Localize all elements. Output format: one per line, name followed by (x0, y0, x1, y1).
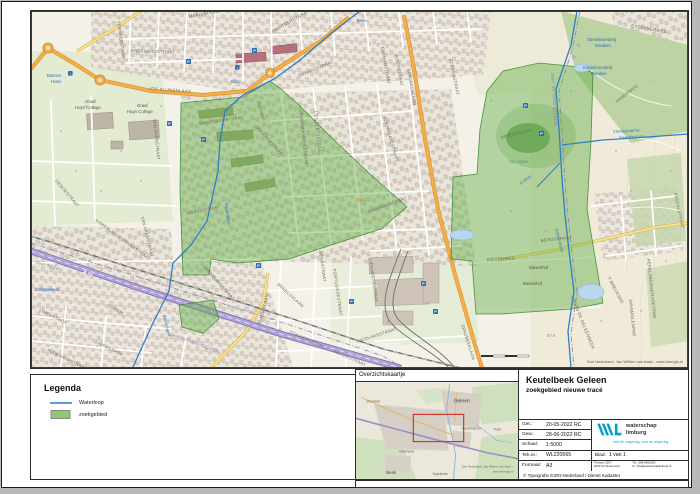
sheet-title: Keutelbeek Geleen (526, 375, 688, 385)
parking-icon: P (256, 263, 261, 268)
map-label: Daniken (591, 71, 607, 76)
title-block: Keutelbeek Geleen zoekgebied nieuwe trac… (518, 369, 689, 480)
map-label: Sweikhuizen (462, 426, 481, 430)
legend-title: Legenda (31, 375, 355, 393)
waterschap-limburg-logo: waterschap limburg met de omgeving, voor… (592, 420, 688, 451)
title-block-fields: Get.: 20-05-2022 RC Gew.: 28-06-2022 RC … (519, 420, 592, 471)
svg-text:P: P (540, 132, 543, 136)
zoekgebied-fill-swatch (50, 410, 72, 419)
overview-map: GeleenChemelotSweikhuizenPuthNeerbeekSpa… (356, 382, 518, 479)
title-block-header: Keutelbeek Geleen zoekgebied nieuwe trac… (519, 370, 688, 420)
map-label: Geleen (454, 398, 470, 404)
org-address: Postbus 2207 Tel.: 088-8890100 6040 CC R… (592, 461, 688, 471)
map-label: Huyn College (127, 109, 153, 114)
legend-item-waterloop: Waterloop (50, 400, 355, 406)
svg-text:P: P (202, 138, 205, 142)
map-label: Esri Nederland, Jan Willem van Aalst - (462, 465, 513, 469)
map-label: Biesenhof (523, 281, 543, 286)
parking-icon: P (421, 281, 426, 286)
map-label: Chemelot (366, 399, 380, 403)
sheet-subtitle: zoekgebied nieuwe tracé (526, 387, 688, 394)
field-modified: Gew.: 28-06-2022 RC (519, 430, 591, 440)
map-label: Callistuskerk (35, 287, 60, 292)
parking-icon: P (201, 137, 206, 142)
scale-bar (481, 355, 529, 357)
map-label: www.imergis.nl (493, 469, 513, 473)
svg-text:P: P (257, 264, 260, 268)
map-label: Puth (494, 428, 501, 432)
legend-item-zoekgebied: zoekgebied (50, 410, 355, 419)
map-label: Graaf (137, 103, 149, 108)
document-path-bar: Pad- en documentnaam: Z:\WSL\A_Prog_Wate… (355, 480, 689, 488)
org-name: waterschap limburg (626, 423, 657, 435)
map-label: Streekboerderij (587, 37, 616, 42)
overview-map-title: Overzichtskaartje (356, 370, 518, 382)
map-label: 6164 (357, 197, 367, 202)
svg-text:P: P (253, 49, 256, 53)
star-icon: ☆ (576, 42, 581, 49)
map-label: Graaf (85, 99, 97, 104)
parking-icon: P (252, 48, 257, 53)
map-sheet-page: PPPPPPPPPPii☆☆ MARISSTRAATBREITNERSTRAAT… (0, 0, 700, 494)
main-map-frame: PPPPPPPPPPii☆☆ MARISSTRAATBREITNERSTRAAT… (30, 10, 689, 369)
svg-text:P: P (187, 60, 190, 64)
map-label: Esri Nederland, Jan Willem van Aalst - w… (587, 359, 683, 364)
field-scale: Schaal: 1:5000 (519, 440, 591, 450)
svg-text:P: P (350, 300, 353, 304)
info-icon: i (235, 65, 240, 70)
map-label: Esso (357, 18, 367, 23)
main-map: PPPPPPPPPPii☆☆ MARISSTRAATBREITNERSTRAAT… (31, 11, 688, 368)
map-label: 57.9 (547, 333, 556, 338)
copyright-note: © Topografie ESRI-Nederland / Dienst Kad… (519, 471, 688, 480)
map-label: Bastion (47, 73, 62, 78)
parking-icon: P (167, 121, 172, 126)
svg-text:P: P (524, 104, 527, 108)
svg-text:P: P (168, 122, 171, 126)
page: PPPPPPPPPPii☆☆ MARISSTRAATBREITNERSTRAAT… (1, 1, 692, 488)
parking-icon: P (523, 103, 528, 108)
parking-icon: P (349, 299, 354, 304)
parking-icon: P (539, 131, 544, 136)
map-label: Vis vijver (509, 159, 529, 164)
legend-label-waterloop: Waterloop (79, 400, 104, 406)
map-label: Huyn College (75, 105, 101, 110)
field-format: Formaat: A3 (519, 461, 591, 471)
parking-icon: P (186, 59, 191, 64)
map-label: Esso (231, 79, 241, 84)
overview-map-box: Overzichtskaartje GeleenChemelotSweikhui (355, 369, 519, 480)
map-label: Hotel (51, 79, 61, 84)
map-label: Beek (386, 470, 397, 475)
wl-logo-icon (596, 422, 622, 437)
legend-box: Legenda Waterloop zoekgebied (30, 374, 356, 480)
map-label: Neerbeek (399, 450, 414, 454)
info-icon: i (68, 71, 73, 76)
parking-icon: P (433, 309, 438, 314)
map-label: Spaubeek (432, 472, 448, 476)
svg-text:P: P (434, 310, 437, 314)
field-drawn: Get.: 20-05-2022 RC (519, 420, 591, 430)
map-label: Kinderboerderij (583, 65, 612, 70)
map-label: Biesenhof (529, 265, 549, 270)
map-label: Daniken (595, 43, 611, 48)
star-icon: ☆ (571, 54, 576, 61)
org-tagline: met de omgeving, voor de omgeving (596, 440, 686, 444)
waterloop-line-swatch (50, 401, 72, 405)
field-drawing-number: Tek.nr.: WL220565 (519, 451, 591, 461)
svg-text:P: P (422, 282, 425, 286)
field-sheet-number: Blad: 1 van 1 (592, 451, 688, 461)
legend-label-zoekgebied: zoekgebied (79, 412, 107, 418)
